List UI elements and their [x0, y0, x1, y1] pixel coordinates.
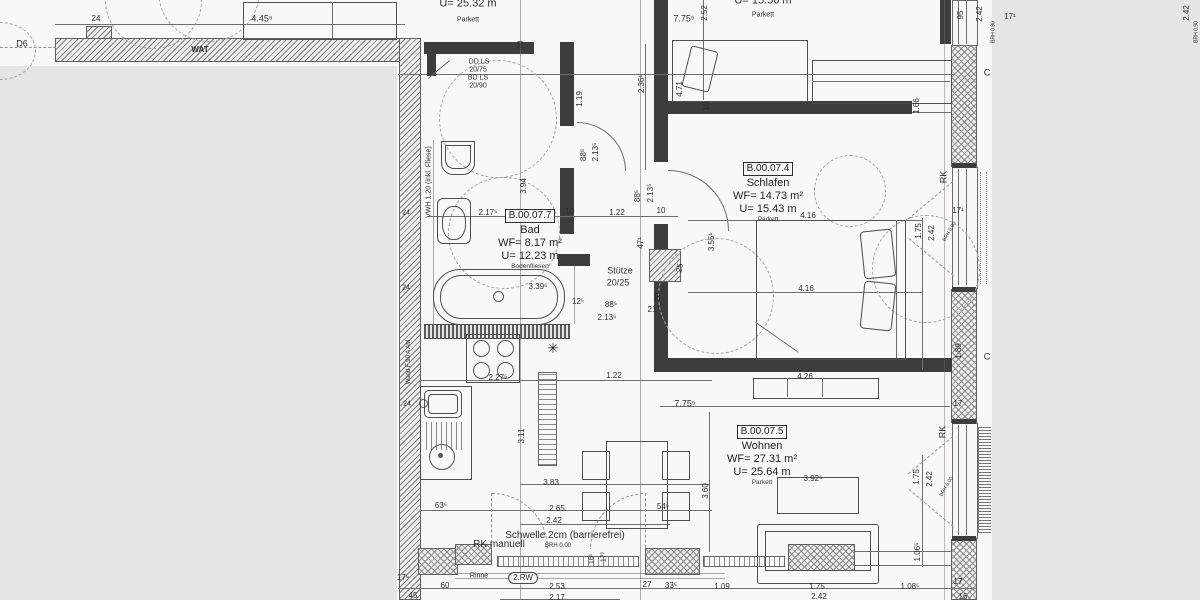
dimension-label: 20/25	[607, 279, 630, 288]
dimension-label: VWH 1.20 (inkl. Fliese)	[426, 146, 433, 218]
dimension-label: 27	[643, 581, 652, 589]
dimension-label: 2.42	[928, 225, 936, 241]
annotation-layer: D6244.45⁵WATU= 25.32 mParkett7.75⁵2.52U=…	[0, 0, 1200, 600]
dimension-label: RK	[940, 171, 949, 184]
dimension-label: C	[984, 69, 991, 78]
dimension-label: 24	[403, 401, 411, 408]
dimension-label: 12⁵	[572, 298, 584, 306]
dimension-label: 1.22	[609, 209, 625, 217]
dimension-label: 1.75	[913, 469, 921, 485]
dimension-label: 2.13⁵	[592, 143, 600, 162]
dimension-label: BRH 0.90	[1195, 21, 1200, 43]
dimension-label: Wand F 90 A AM	[406, 340, 412, 384]
dimension-label: 60	[441, 582, 450, 590]
dimension-label: 1.66	[913, 98, 921, 114]
dimension-label: RK	[939, 426, 948, 439]
dimension-label: 1.75	[809, 583, 825, 591]
dimension-label: 20/90	[469, 83, 487, 90]
dimension-label: 24	[402, 285, 410, 292]
dimension-label: 45	[409, 592, 418, 600]
dimension-label: BRH 0.90	[992, 21, 997, 43]
dimension-label: 17¹	[952, 207, 964, 215]
dimension-label: 2.13⁵	[647, 184, 655, 203]
dimension-label: 17¹	[601, 552, 608, 562]
dimension-label: 54⁵	[657, 503, 669, 511]
dimension-label: 17	[954, 578, 963, 586]
dimension-label: 17⁵	[397, 574, 409, 582]
dimension-label: 88⁵	[580, 149, 588, 161]
dimension-label: 7.75⁵	[674, 400, 695, 409]
dimension-label: 4.45⁵	[251, 15, 272, 24]
dimension-label: 2.17	[549, 594, 565, 600]
dimension-label: 1.06⁵	[914, 543, 922, 562]
dimension-label: D6	[16, 40, 28, 49]
dimension-label: 3.60	[702, 483, 710, 499]
dimension-label: 17	[954, 400, 963, 408]
dimension-label: 25	[675, 263, 684, 273]
dimension-label: 2.27⁵	[489, 374, 508, 382]
floorplan-canvas: B.00.07.7 Bad WF= 8.17 m² U= 12.23 m Bod…	[0, 0, 1200, 600]
dimension-label: WAT	[191, 46, 208, 54]
dimension-label: 2.42	[546, 517, 562, 525]
dimension-label: 20/75	[469, 67, 487, 74]
dimension-label: 4.26	[797, 373, 813, 381]
dimension-label: 2.36¹	[638, 75, 646, 93]
dimension-label: 24	[402, 210, 410, 217]
dimension-label: BRH 0.90	[942, 221, 957, 242]
dimension-label: 63⁵	[435, 502, 447, 510]
dimension-label: 21	[648, 306, 657, 314]
dimension-label: 10	[517, 41, 525, 50]
dimension-label: 1.09	[714, 583, 730, 591]
dimension-label: C	[984, 353, 991, 362]
dimension-label: Parkett	[457, 17, 479, 24]
dimension-label: 10	[657, 207, 666, 215]
dimension-label: U= 25.32 m	[439, 0, 496, 10]
dimension-label: 47¹	[637, 237, 645, 249]
dimension-label: 10	[566, 208, 575, 216]
dimension-label: 33⁵	[665, 582, 677, 590]
dimension-label: 2.53	[549, 583, 565, 591]
dimension-label: 3.94	[520, 178, 528, 194]
dimension-label: RK manuell	[473, 540, 525, 550]
dimension-label: 2.42	[976, 6, 984, 22]
dimension-label: BD LS	[468, 75, 488, 82]
dimension-label: 17¹	[1004, 13, 1016, 21]
dimension-label: Rinne	[470, 573, 488, 580]
dimension-label: 2.42	[926, 471, 934, 487]
dimension-label: 10	[703, 102, 711, 111]
dimension-label: 2.65	[549, 505, 565, 513]
dimension-label: 2.17⁵	[479, 209, 498, 217]
dimension-label: 1.75	[915, 223, 923, 239]
dimension-label: 88⁵	[605, 301, 617, 309]
dimension-label: 4.16	[800, 212, 816, 220]
dimension-label: 7.75⁵	[673, 15, 694, 24]
dimension-label: 88⁵	[634, 190, 642, 202]
dimension-label: 2.13⁵	[598, 314, 617, 322]
dimension-label: BRH 0.00	[545, 543, 571, 549]
dimension-label: BRH 0.00	[939, 476, 954, 497]
dimension-label: DD LS	[469, 59, 490, 66]
dimension-label: 16	[959, 593, 968, 600]
dimension-label: 2.52	[701, 5, 709, 21]
dimension-label: 24	[92, 15, 101, 23]
dimension-label: U= 15.56 m	[734, 0, 791, 7]
dimension-label: 3.83	[543, 479, 559, 487]
dimension-label: 4.71	[676, 81, 684, 97]
dimension-label: 4.16	[798, 285, 814, 293]
dimension-label: 3.55¹	[708, 233, 716, 251]
dimension-label: 1.89	[955, 343, 963, 359]
dimension-label: 2.42	[1183, 5, 1191, 21]
dimension-label: 1.19	[576, 91, 584, 107]
dimension-label: 3.39⁵	[529, 283, 548, 291]
dimension-label: 20	[654, 293, 662, 302]
dimension-label: 1.08⁵	[901, 583, 920, 591]
dimension-label: 3.92⁵	[804, 475, 823, 483]
dimension-label: 1.22	[606, 372, 622, 380]
dimension-label: 2.RW	[508, 572, 538, 584]
dimension-label: 16¹	[589, 554, 596, 564]
lamp-symbol: ✳	[547, 341, 559, 355]
dimension-label: 2.42	[811, 593, 827, 600]
dimension-label: 3.11	[518, 429, 526, 444]
dimension-label: Stütze	[607, 267, 633, 276]
dimension-label: 95	[957, 11, 965, 20]
dimension-label: Parkett	[752, 12, 774, 19]
